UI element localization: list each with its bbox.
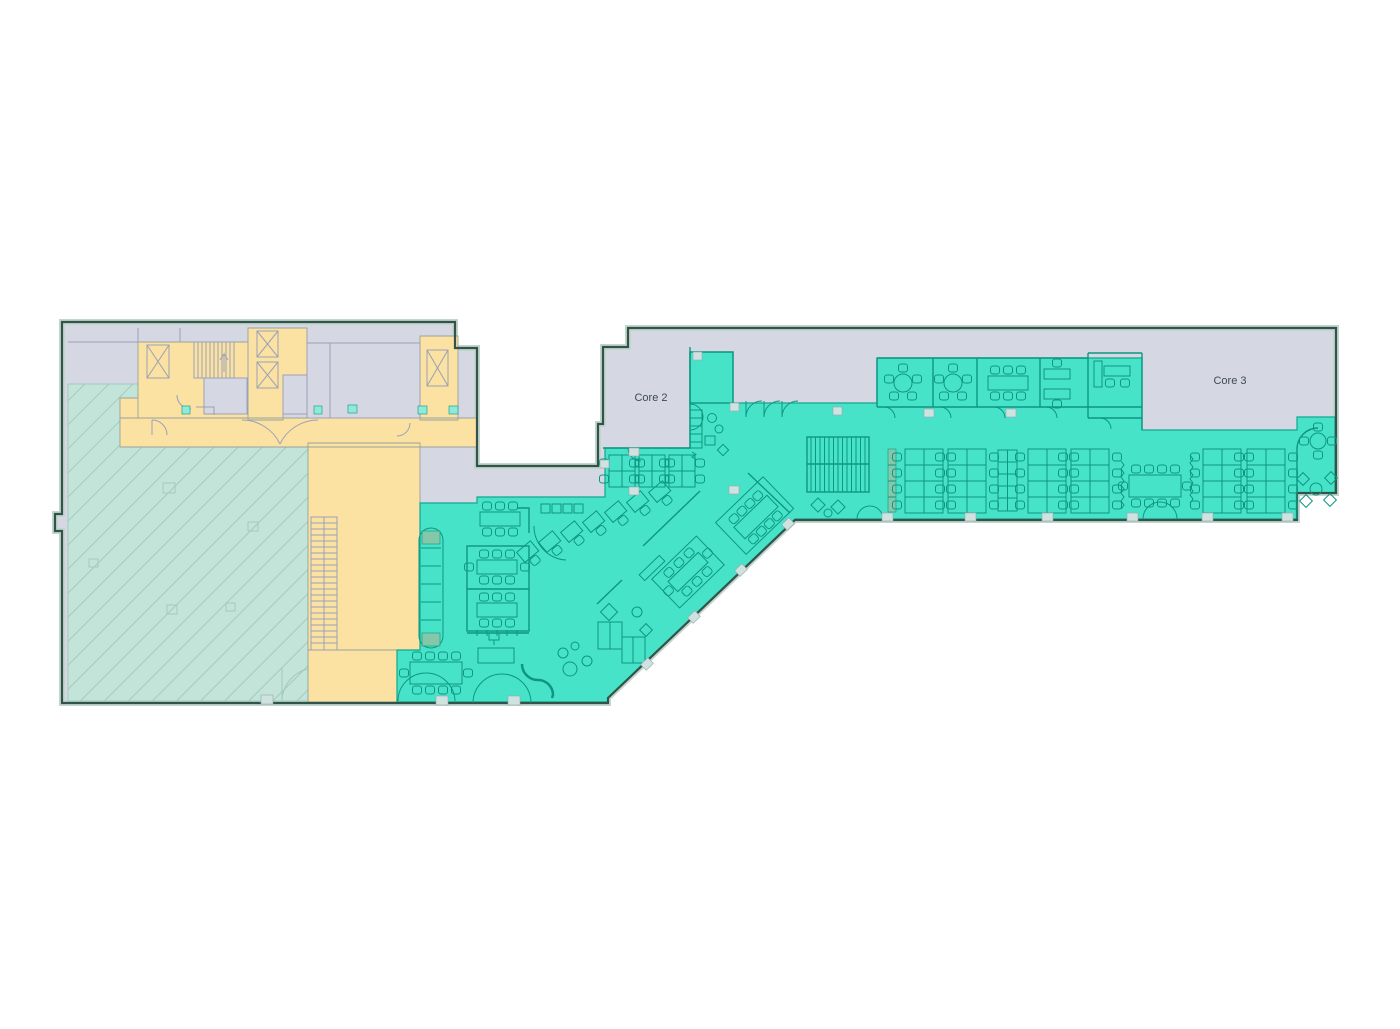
shell-room	[307, 343, 420, 418]
core3-label: Core 3	[1213, 375, 1246, 387]
shell-room	[204, 378, 247, 414]
core2-label: Core 2	[634, 392, 667, 404]
floor-plan-canvas: Core 2 Core 3	[0, 0, 1400, 1029]
floor-plan: Core 2 Core 3	[0, 0, 1400, 1029]
